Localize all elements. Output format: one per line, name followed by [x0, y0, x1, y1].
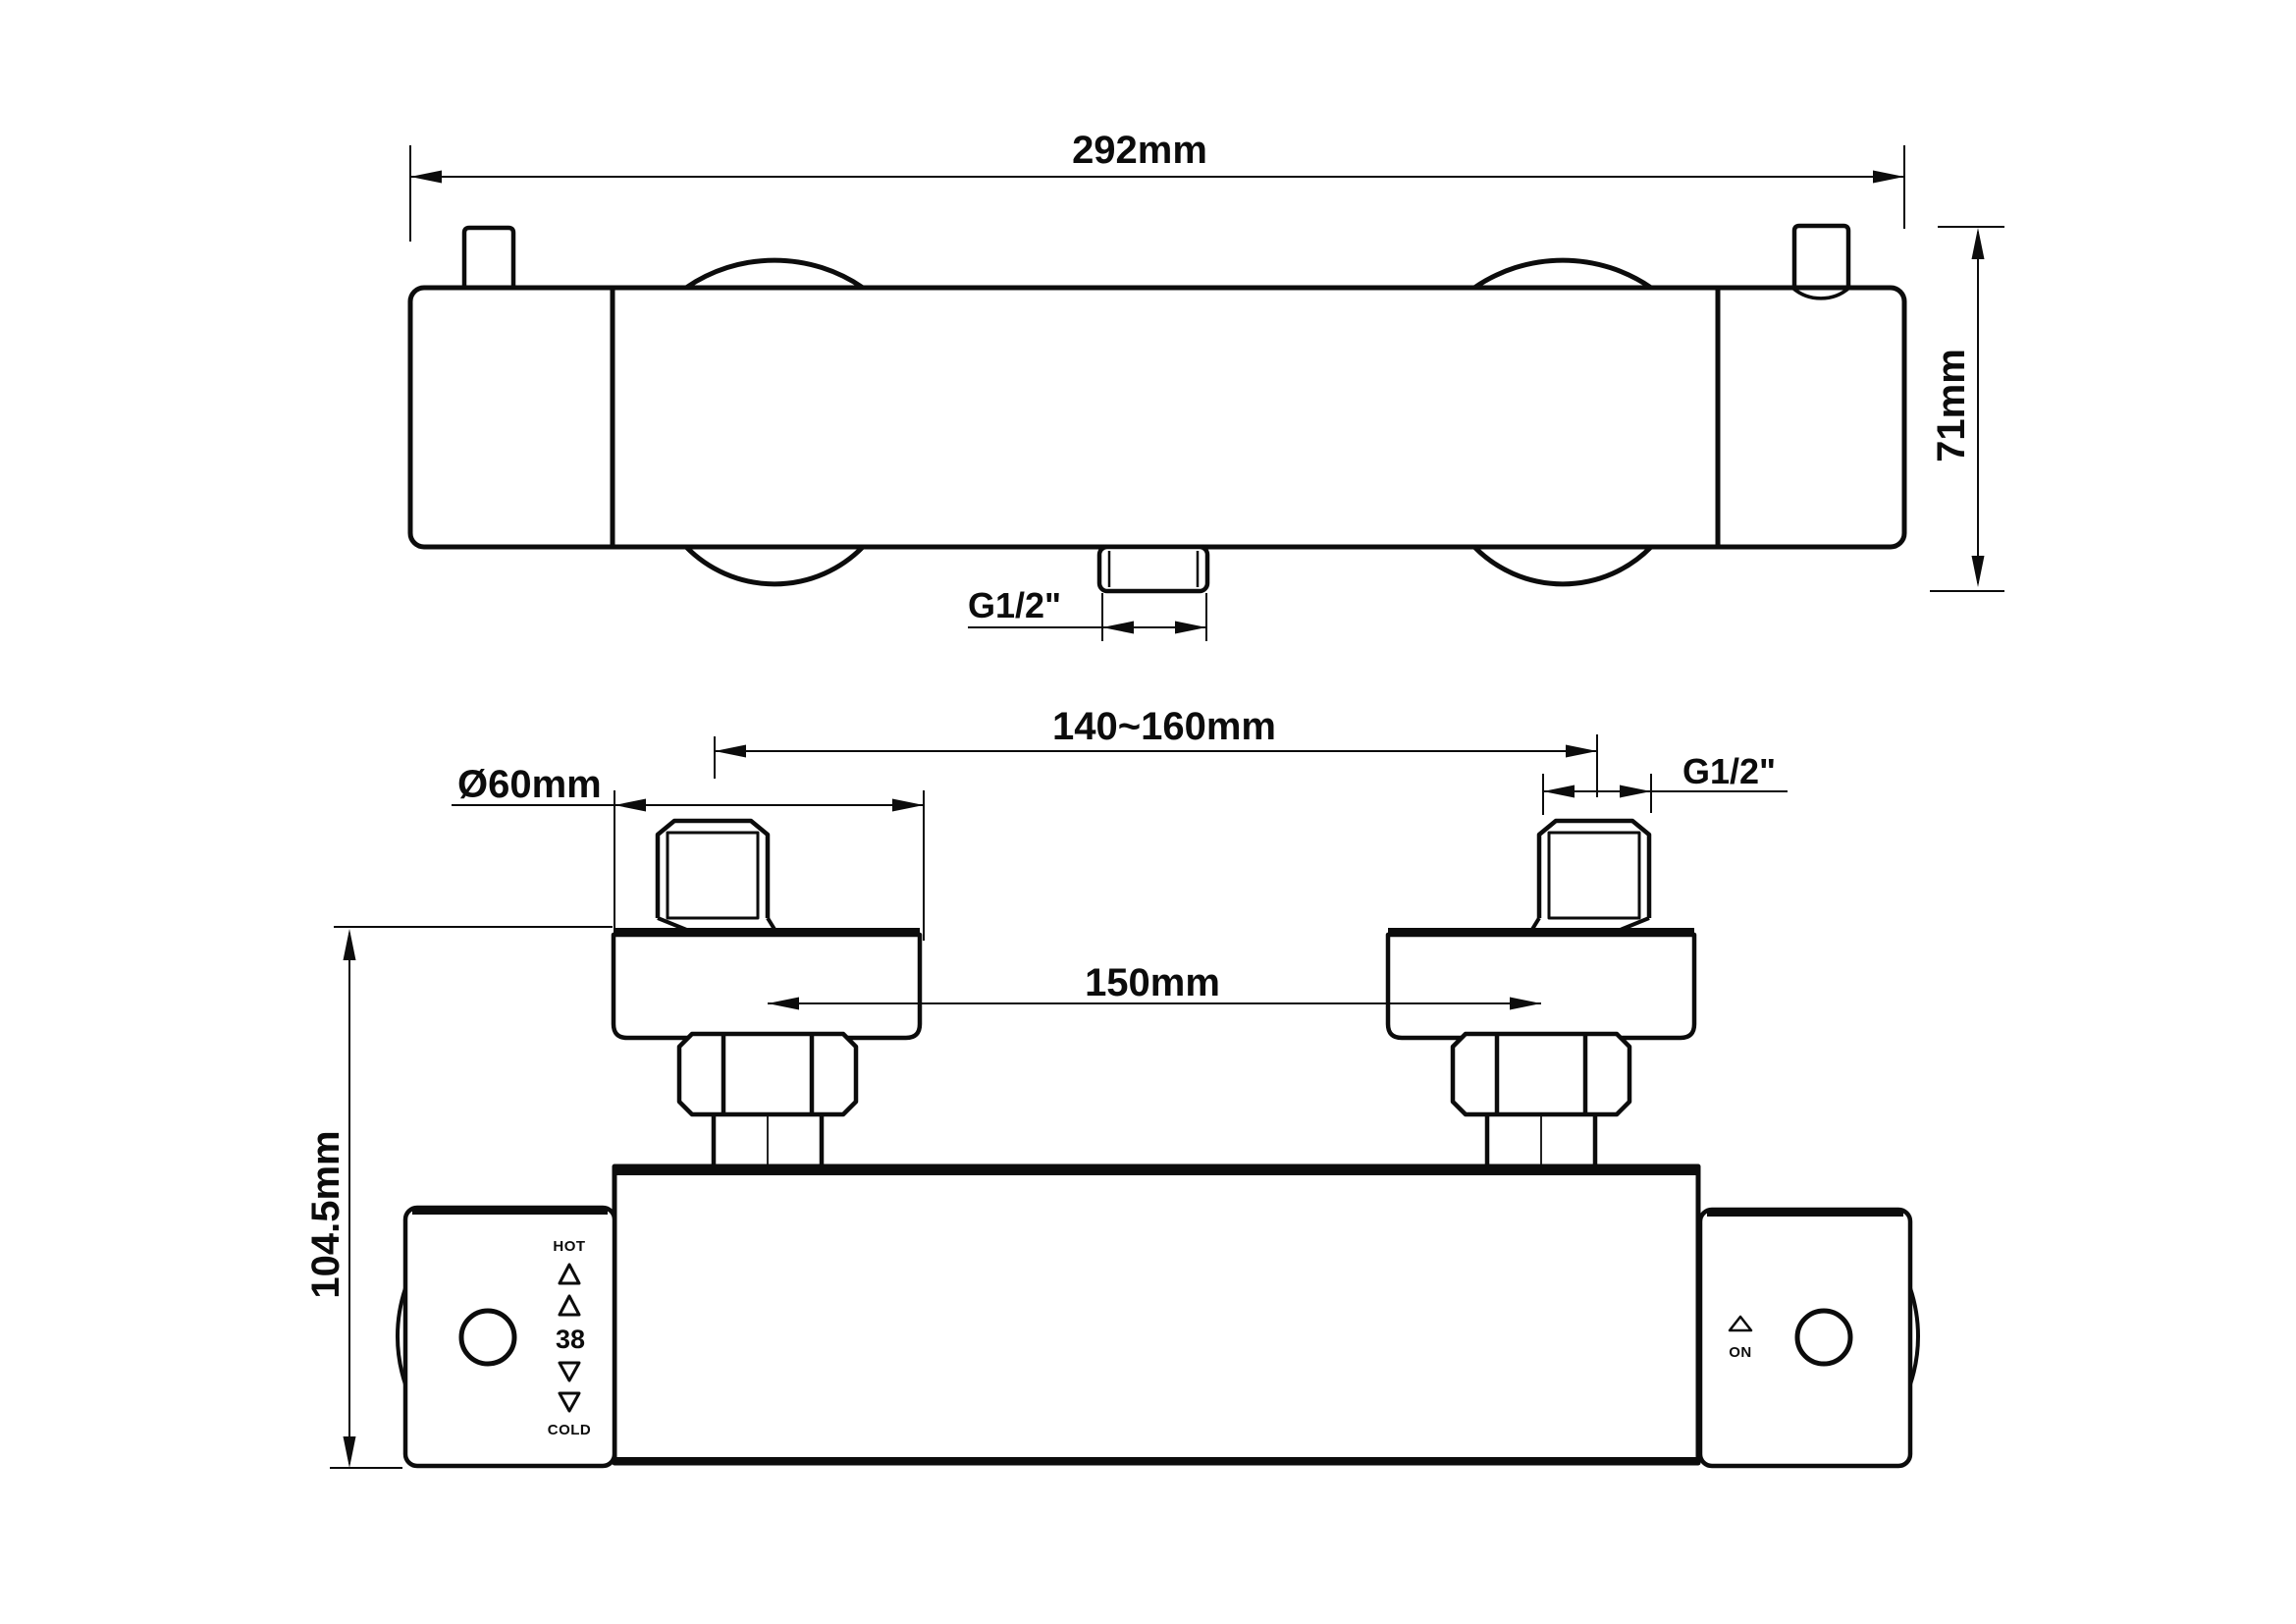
flow-handle-screw — [1797, 1311, 1850, 1364]
dim-label-overall-height: 104.5mm — [304, 1130, 347, 1298]
left-flange-top-edge — [614, 928, 920, 936]
arrowhead-right — [1566, 745, 1597, 758]
top-view-right-dome-upper — [1474, 260, 1651, 288]
left-inlet-fitting — [614, 821, 920, 1166]
arrowhead-down — [344, 1436, 356, 1468]
right-thread-outer — [1539, 821, 1649, 918]
left-eccentric-flange — [614, 935, 920, 1038]
top-view-left-lever-tab — [464, 228, 513, 288]
arrowhead-left — [410, 171, 442, 184]
dimension-inlet-spacing: 140~160mm — [715, 705, 1597, 797]
temperature-handle: HOT 38 COLD — [398, 1208, 614, 1466]
arrowhead-up — [344, 929, 356, 960]
left-thread-outer — [658, 821, 768, 918]
arrowhead-up — [1972, 228, 1985, 259]
dim-label-center-distance: 150mm — [1085, 961, 1220, 1004]
left-hex-nut — [679, 1034, 856, 1114]
right-eccentric-flange — [1388, 935, 1694, 1038]
top-view-left-dome-upper — [686, 260, 863, 288]
top-view-right-lever-tab — [1794, 226, 1848, 288]
dim-label-inlet-spacing: 140~160mm — [1052, 705, 1276, 748]
dimension-outlet-thread: G1/2" — [968, 585, 1206, 641]
right-thread-inner — [1549, 833, 1639, 918]
front-body-top-edge — [614, 1166, 1698, 1175]
temperature-handle-top-edge — [412, 1208, 608, 1215]
temperature-handle-screw — [461, 1311, 514, 1364]
front-view: HOT 38 COLD ON 140~160mm — [304, 705, 1918, 1468]
cold-label: COLD — [548, 1422, 592, 1438]
hot-label: HOT — [553, 1238, 585, 1255]
arrowhead-right — [1175, 622, 1206, 634]
arrowhead-right — [892, 799, 924, 812]
arrowhead-left — [614, 799, 646, 812]
right-hex-nut — [1453, 1034, 1629, 1114]
dim-label-inlet-thread: G1/2" — [1682, 751, 1776, 791]
right-inlet-fitting — [1388, 821, 1694, 1166]
top-view-right-dome-lower — [1474, 547, 1651, 584]
dimension-body-height: 71mm — [1930, 227, 2004, 591]
flow-handle-top-edge — [1707, 1210, 1903, 1217]
arrowhead-left — [1543, 785, 1575, 798]
arrowhead-right — [1873, 171, 1904, 184]
top-view-outlet-nipple — [1099, 547, 1207, 591]
top-view-body-outline — [410, 288, 1904, 547]
front-body-bottom-edge — [614, 1457, 1698, 1463]
dim-label-overall-width: 292mm — [1072, 129, 1207, 172]
arrowhead-left — [715, 745, 746, 758]
left-thread-inner — [667, 833, 758, 918]
dim-label-body-height: 71mm — [1930, 349, 1973, 462]
front-body-outline — [614, 1166, 1698, 1463]
dimension-flange-diameter: Ø60mm — [452, 763, 924, 941]
flow-handle: ON — [1700, 1210, 1918, 1466]
top-view-left-dome-lower — [686, 547, 863, 584]
dimension-inlet-thread: G1/2" — [1543, 751, 1788, 815]
arrowhead-down — [1972, 556, 1985, 587]
drawing-canvas: 292mm 71mm G1/2" — [0, 0, 2296, 1624]
on-label: ON — [1729, 1344, 1752, 1361]
setpoint-38-label: 38 — [556, 1325, 585, 1354]
top-view: 292mm 71mm G1/2" — [410, 129, 2004, 641]
right-flange-top-edge — [1388, 928, 1694, 936]
dim-label-outlet-thread: G1/2" — [968, 585, 1061, 625]
arrowhead-right — [1620, 785, 1651, 798]
shower-valve-technical-drawing: 292mm 71mm G1/2" — [0, 0, 2296, 1624]
dim-label-flange-diameter: Ø60mm — [457, 763, 602, 806]
arrowhead-left — [1102, 622, 1134, 634]
dimension-overall-width: 292mm — [410, 129, 1904, 242]
